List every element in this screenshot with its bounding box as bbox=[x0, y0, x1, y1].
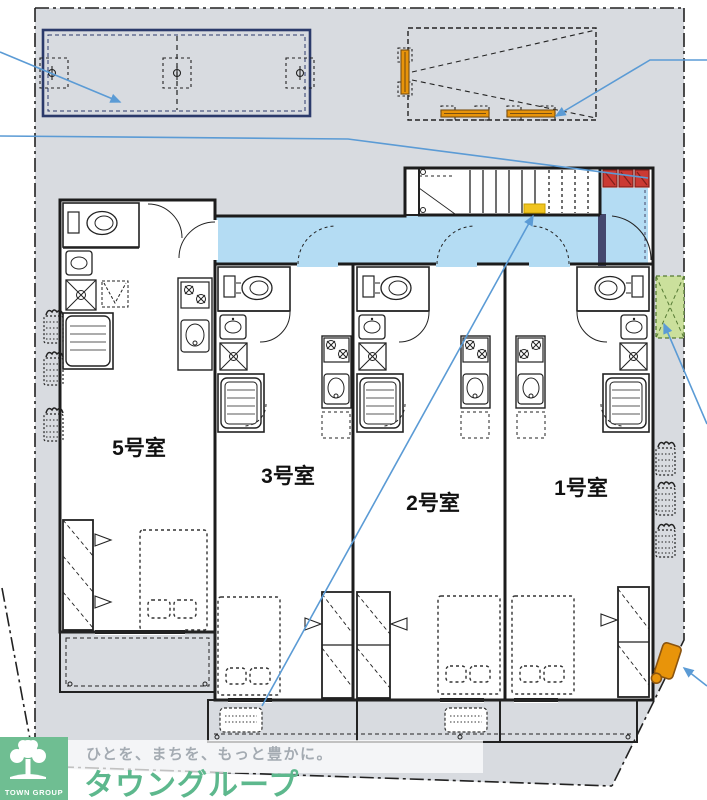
tree-icon bbox=[0, 737, 56, 781]
town-group-logo: TOWN GROUP bbox=[0, 737, 68, 800]
entrance-porch bbox=[601, 188, 648, 264]
floor-plan-svg: 5号室 3号室 bbox=[0, 0, 707, 800]
entrance-wall bbox=[598, 214, 606, 266]
room-label-3: 3号室 bbox=[261, 464, 315, 488]
corridor bbox=[215, 216, 648, 264]
footer-brand: タウングループ bbox=[84, 760, 299, 800]
room-label-5: 5号室 bbox=[112, 436, 166, 460]
floor-plan-image: 5号室 3号室 bbox=[0, 0, 707, 800]
ac-outdoor-unit bbox=[445, 708, 487, 732]
room-label-2: 2号室 bbox=[406, 491, 460, 515]
unit5-door-gap bbox=[212, 220, 218, 260]
ac-outdoor-unit bbox=[220, 708, 262, 732]
leader-arrow-heater bbox=[684, 668, 707, 686]
room-label-1: 1号室 bbox=[554, 476, 608, 500]
logo-text: TOWN GROUP bbox=[5, 789, 63, 800]
stair-highlight bbox=[524, 204, 545, 213]
